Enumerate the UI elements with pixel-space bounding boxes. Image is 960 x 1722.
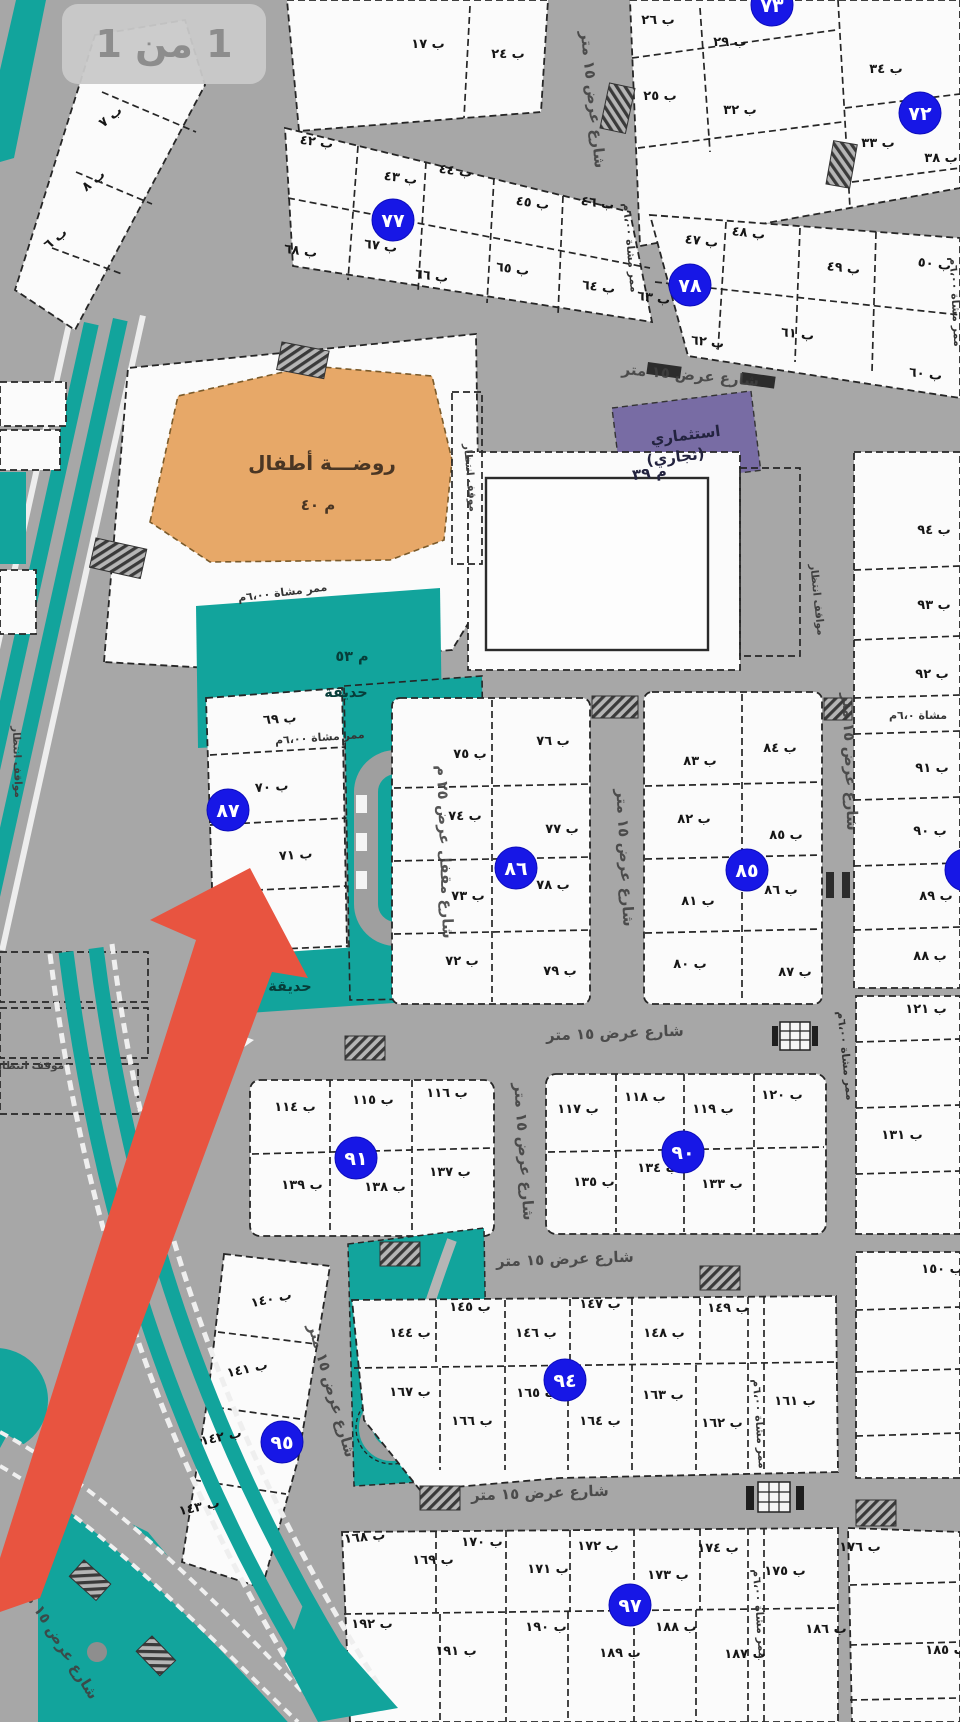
plot-label: ب ١٨٦ xyxy=(805,1622,846,1637)
plot-label: ب ٧٩ xyxy=(543,964,576,979)
parking-label: مواقف انتظار xyxy=(10,725,25,798)
plot-block xyxy=(856,996,960,1234)
plot-label: ب ١١٧ xyxy=(557,1102,598,1117)
plot-label: ب ١٨٩ xyxy=(599,1646,640,1661)
zone-title-label: روضـــة أطفال xyxy=(248,449,396,475)
parking-label: موقف انتظار xyxy=(0,1060,64,1072)
block-number-badge: ٨٦ xyxy=(495,847,537,889)
plot-label: ب ٩٠ xyxy=(913,824,946,839)
plot-label: ب ١٨٥ xyxy=(925,1643,960,1658)
svg-text:٧٧: ٧٧ xyxy=(381,210,405,232)
facility-building xyxy=(486,478,708,650)
plot-label: ب ٨١ xyxy=(681,894,714,909)
svg-text:٩٥: ٩٥ xyxy=(270,1432,293,1454)
plot-label: ب ٧١ xyxy=(279,847,313,864)
plot-label: ب ١٣٥ xyxy=(573,1175,614,1190)
plot-block xyxy=(856,1252,960,1478)
plot-label: ب ٢٦ xyxy=(641,13,674,28)
plot-label: ب ١٩٢ xyxy=(351,1617,392,1632)
plot-block xyxy=(0,570,36,634)
plot-label: ب ٧٨ xyxy=(536,878,569,893)
block-number-badge: ٩٤ xyxy=(544,1359,586,1401)
plot-label: ب ٢٩ xyxy=(713,35,746,50)
plot-label: ب ١٦٢ xyxy=(701,1416,742,1431)
garden-label: حديقة xyxy=(324,685,368,701)
svg-text:٩٧: ٩٧ xyxy=(618,1595,642,1617)
plot-label: ب ٨٥ xyxy=(769,828,802,843)
block-number-badge: ٧٧ xyxy=(372,199,414,241)
svg-text:٧٨: ٧٨ xyxy=(678,275,702,297)
block-number-badge: ٧٨ xyxy=(669,264,711,306)
plot-label: ب ١٣٩ xyxy=(281,1178,322,1193)
zoning-map-canvas[interactable]: ب ٧ب ٨ب ٦ب ١٧ب ٢٤ب ٢٦ب ٢٩ب ٢٥ب ٣٢ب ٣٤ب ٣… xyxy=(0,0,960,1722)
svg-text:٨٧: ٨٧ xyxy=(216,800,240,822)
plot-label: ب ٧٧ xyxy=(545,822,578,837)
block-number-badge: ٧٢ xyxy=(899,92,941,134)
plot-block-85 xyxy=(644,692,822,1004)
plot-label: ب ٩١ xyxy=(915,761,948,776)
plot-label: ب ٧٠ xyxy=(255,779,289,796)
block-number-badge: ٨٧ xyxy=(207,789,249,831)
plot-label: ب ١٧ xyxy=(411,37,444,52)
plot-label: ب ٦٩ xyxy=(263,711,297,728)
plot-block xyxy=(848,1528,960,1722)
plot-label: ب ٧٢ xyxy=(445,954,478,969)
plot-label: ب ١٥٠ xyxy=(921,1262,960,1277)
garden-label: م ٥٣ xyxy=(335,649,368,665)
svg-text:٩٠: ٩٠ xyxy=(671,1142,694,1164)
plot-label: ب ٨٦ xyxy=(764,883,797,898)
plot-label: ب ٢٥ xyxy=(643,89,676,104)
page-indicator-badge: 1 من 1 xyxy=(62,4,266,84)
plot-label: ب ١٧٠ xyxy=(461,1535,502,1550)
plot-label: ب ١٦٦ xyxy=(451,1414,492,1429)
plot-label: ب ١٢٠ xyxy=(761,1088,802,1103)
plot-label: ب ١١٦ xyxy=(426,1086,467,1101)
plot-label: ب ١٢١ xyxy=(905,1002,946,1017)
plot-label: ب ١٦١ xyxy=(774,1394,815,1409)
plot-label: ب ٣٨ xyxy=(924,151,957,166)
block-number-badge: ٩٠ xyxy=(662,1131,704,1173)
plot-label: ب ٧٥ xyxy=(453,747,486,762)
svg-text:٩١: ٩١ xyxy=(344,1148,367,1170)
park-strip xyxy=(0,472,26,564)
plot-label: ب ١٦٧ xyxy=(389,1385,430,1400)
plot-label: ب ٨٠ xyxy=(673,957,706,972)
plot-label: ب ١٧١ xyxy=(527,1562,568,1577)
plot-label: ب ٣٤ xyxy=(869,62,902,77)
block-number-badge: ٩٥ xyxy=(261,1421,303,1463)
map-viewer: ب ٧ب ٨ب ٦ب ١٧ب ٢٤ب ٢٦ب ٢٩ب ٢٥ب ٣٢ب ٣٤ب ٣… xyxy=(0,0,960,1722)
block-number-badge: ٩٧ xyxy=(609,1584,651,1626)
plot-label: ب ١١٥ xyxy=(352,1093,393,1108)
plot-label: ب ١٧٥ xyxy=(764,1564,805,1579)
plot-label: ب ١١٨ xyxy=(624,1090,665,1105)
garden-label: حديقة xyxy=(268,979,312,995)
plot-block xyxy=(0,430,60,470)
plot-label: ب ١٩٠ xyxy=(525,1620,566,1635)
plot-block xyxy=(0,382,66,426)
block-number-badge: ٩١ xyxy=(335,1137,377,1179)
plot-label: ب ٩٣ xyxy=(917,598,950,613)
plot-label: ب ١٣٧ xyxy=(429,1165,470,1180)
plot-label: ب ١٣١ xyxy=(881,1128,922,1143)
plot-label: ب ٨٧ xyxy=(778,965,811,980)
plot-block xyxy=(287,0,548,131)
svg-text:٧٢: ٧٢ xyxy=(908,103,932,125)
plot-label: ب ١٤٧ xyxy=(579,1297,620,1312)
plot-label: ب ١٦٤ xyxy=(579,1414,620,1429)
plot-label: ب ٢٤ xyxy=(491,47,524,62)
plot-label: ب ٩٢ xyxy=(915,667,948,682)
plot-label: ب ٧٦ xyxy=(536,734,569,749)
plot-label: ب ١٧٦ xyxy=(839,1540,880,1555)
svg-text:٧٣: ٧٣ xyxy=(760,0,784,17)
block-number-badge: ٨٥ xyxy=(726,849,768,891)
plot-label: ب ١١٤ xyxy=(274,1100,315,1115)
plot-label: ب ٣٣ xyxy=(861,136,894,151)
svg-text:٨٦: ٨٦ xyxy=(504,858,527,880)
plot-label: ب ١٨٨ xyxy=(655,1620,696,1635)
plot-label: ب ٨٩ xyxy=(919,889,952,904)
plot-label: ب ١٣٣ xyxy=(701,1177,742,1192)
plot-label: ب ١٤٩ xyxy=(707,1301,748,1316)
plot-label: ب ١٤٥ xyxy=(449,1300,490,1315)
plot-label: ب ١٩١ xyxy=(435,1644,476,1659)
plot-label: ب ١٧٢ xyxy=(577,1539,618,1554)
plot-label: ب ١٤٤ xyxy=(389,1326,430,1341)
plot-label: ب ١٦٩ xyxy=(412,1553,453,1568)
plot-label: ب ٨٨ xyxy=(913,949,946,964)
plot-label: ب ١٦٣ xyxy=(642,1388,683,1403)
plot-label: ب ٨٢ xyxy=(677,812,710,827)
plot-label: ب ١٣٨ xyxy=(364,1180,405,1195)
plot-label: ب ١٤٨ xyxy=(643,1326,684,1341)
plot-label: ب ٨٤ xyxy=(763,741,796,756)
svg-text:٩٤: ٩٤ xyxy=(553,1370,576,1392)
plot-label: ب ٨٣ xyxy=(683,754,716,769)
svg-text:٨٥: ٨٥ xyxy=(735,860,758,882)
plot-label: ب ١٤٦ xyxy=(515,1326,556,1341)
plot-label: ب ١٧٤ xyxy=(697,1541,738,1556)
plot-label: ب ٩٤ xyxy=(917,523,950,538)
plot-label: ب ١٧٣ xyxy=(647,1568,688,1583)
plot-label: ب ٣٢ xyxy=(723,103,756,118)
pedestrian-path-label: مشاة ٦،٠م xyxy=(889,709,947,722)
plot-label: ب ١١٩ xyxy=(692,1102,733,1117)
zone-code-label: م ٤٠ xyxy=(301,496,336,514)
